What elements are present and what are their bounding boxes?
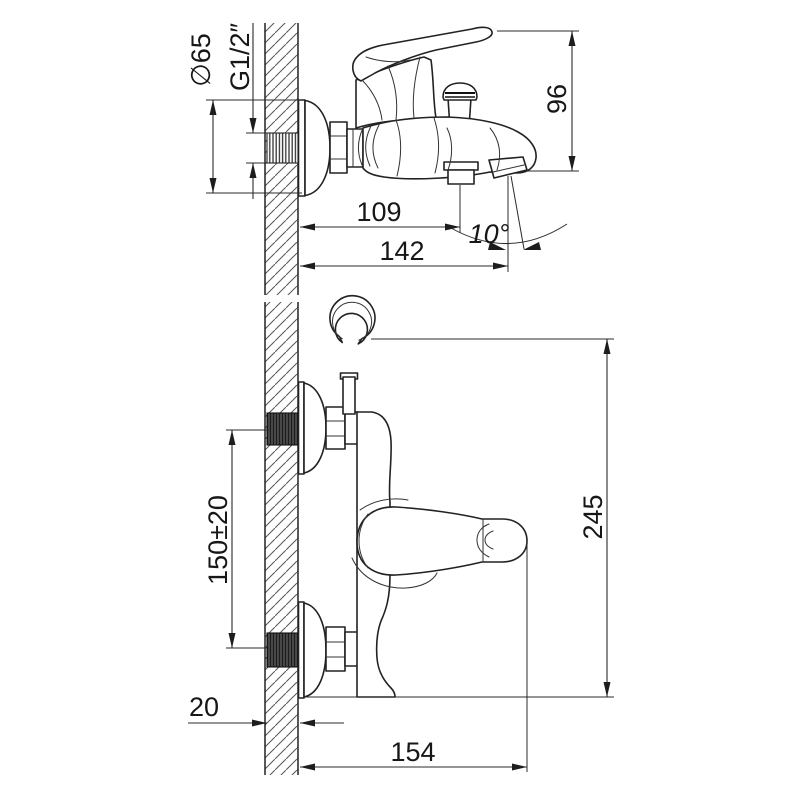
- escutcheon-plate: [299, 100, 306, 196]
- spout-outlet: [489, 157, 527, 178]
- dim-label-flange-diameter: ∅65: [186, 33, 216, 87]
- supply-thread-bottom: [267, 633, 298, 667]
- dim-label-spout-angle: 10°: [469, 219, 510, 249]
- escutcheon-dome-top: [304, 383, 326, 473]
- front-view: 150±20 245 20 154: [188, 296, 614, 775]
- adapter-top: [345, 412, 358, 444]
- mounting-nut: [330, 122, 347, 173]
- wall-section-front: [265, 302, 298, 775]
- dim-label-supply-spacing: 150±20: [203, 495, 233, 585]
- dim-label-depth-142: 142: [379, 236, 424, 266]
- dim-label-height-96: 96: [542, 84, 572, 114]
- dim-spout-angle: 10°: [451, 176, 567, 250]
- technical-drawing-page: ∅65 G1/2″ 96 109: [0, 0, 800, 800]
- dim-label-overall-height: 245: [578, 494, 608, 539]
- dim-depth-109: 109: [300, 185, 460, 233]
- wall-section-side: [265, 23, 298, 295]
- wall-hatch: [265, 302, 298, 775]
- drawing-canvas: ∅65 G1/2″ 96 109: [0, 0, 800, 800]
- shower-holder-ring: [330, 296, 375, 344]
- supply-thread-top: [267, 413, 298, 445]
- dim-label-depth-109: 109: [356, 197, 401, 227]
- dim-label-overall-depth: 154: [390, 737, 435, 767]
- escutcheon-plate-bottom: [299, 602, 305, 698]
- dim-thread-size: G1/2″: [225, 23, 269, 199]
- faucet-front-view: [299, 296, 528, 698]
- dim-label-thread-size: G1/2″: [225, 23, 255, 92]
- adapter-bottom: [345, 632, 358, 666]
- mounting-nut-top: [326, 407, 345, 449]
- escutcheon-dome: [305, 101, 330, 196]
- mounting-nut-bottom: [326, 627, 345, 671]
- supply-thread-side: [267, 133, 298, 163]
- ring-stem: [343, 377, 355, 414]
- dim-label-wall-thickness: 20: [189, 692, 219, 722]
- lever-handle-front: [357, 507, 527, 575]
- side-view: ∅65 G1/2″ 96 109: [186, 23, 579, 295]
- faucet-side-view: [299, 27, 537, 196]
- dim-supply-spacing: 150±20: [203, 430, 269, 648]
- shower-outlet-fitting: [448, 170, 474, 184]
- escutcheon-dome-bottom: [304, 603, 326, 697]
- escutcheon-plate-top: [299, 382, 305, 474]
